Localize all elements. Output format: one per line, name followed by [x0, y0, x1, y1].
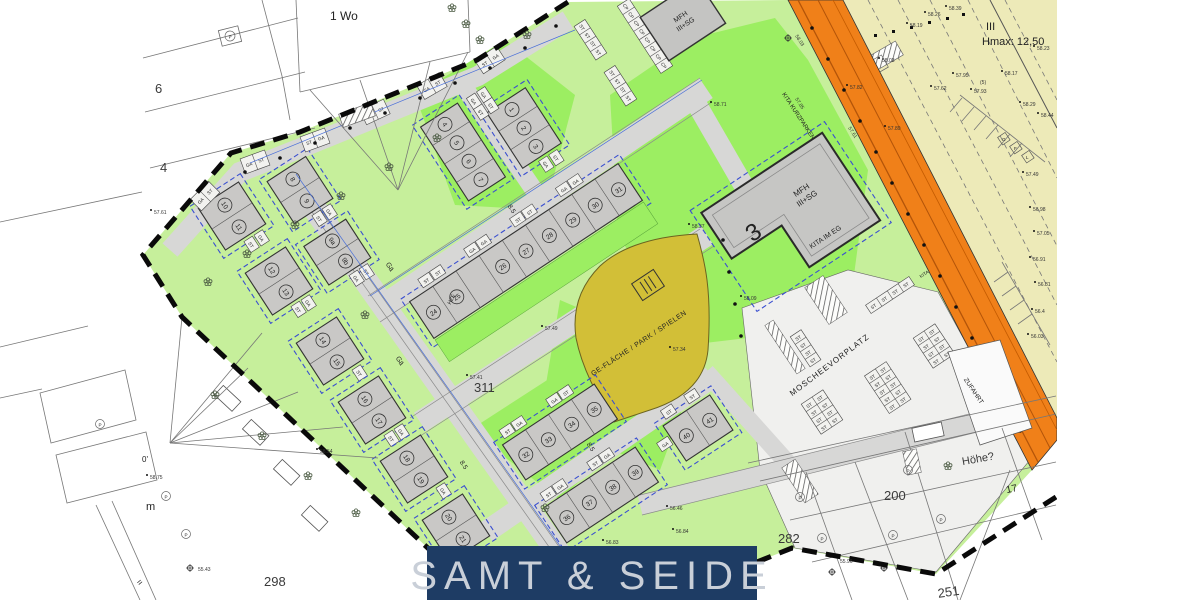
elevation-label: 57.62: [934, 86, 947, 92]
elevation-label: 57.05: [1037, 231, 1050, 237]
svg-text:P: P: [164, 495, 167, 500]
elevation-label: 56.98: [1033, 207, 1046, 213]
svg-text:P: P: [939, 518, 942, 523]
angle-label: 0': [142, 455, 148, 464]
elevation-label: 55.96: [840, 559, 853, 565]
elevation-label: 58.19: [910, 23, 923, 29]
parcel-298: 298: [264, 574, 286, 589]
hmax-label: Hmax: 12,50: [982, 36, 1044, 48]
elevation-label: 58.17: [1005, 71, 1018, 77]
floors-label: III: [986, 21, 995, 33]
elevation-label: 58.23: [1037, 46, 1050, 52]
elevation-label: 57.93: [974, 89, 987, 95]
elevation-label: 58.03: [882, 58, 895, 64]
svg-text:P: P: [98, 423, 101, 428]
elevation-label: 58.09: [744, 296, 757, 302]
site-plan-map: III Hmax: 12,50 (5) G F L: [0, 0, 1200, 600]
elevation-label: 57.82: [850, 85, 863, 91]
elevation-label: 57.89: [888, 126, 901, 132]
elevation-label: 58.26: [928, 12, 941, 18]
elevation-label: 57.61: [154, 210, 167, 216]
parcel-311: 311: [474, 380, 495, 395]
elevation-label: 58.29: [1023, 102, 1036, 108]
parcel-200: 200: [884, 488, 906, 503]
utility-g: G: [1002, 137, 1006, 142]
elevation-label: 56.91: [1033, 257, 1046, 263]
elevation-label: 57.41: [470, 375, 483, 381]
elevation-label: 57.34: [673, 347, 686, 353]
elevation-label: 56.84: [676, 529, 689, 535]
elevation-label: 56.46: [670, 506, 683, 512]
parcel-1wo: 1 Wo: [330, 9, 358, 23]
svg-text:P: P: [184, 533, 187, 538]
site-plan-screenshot: III Hmax: 12,50 (5) G F L: [0, 0, 1200, 600]
parcel-251: 251: [937, 583, 961, 600]
elevation-label: 55.43: [198, 567, 211, 573]
svg-text:P: P: [906, 469, 909, 474]
svg-text:P: P: [891, 534, 894, 539]
parcel-4: 4: [160, 160, 167, 175]
svg-text:P: P: [820, 537, 823, 542]
elevation-label: 58.75: [150, 475, 163, 481]
parcel-282: 282: [778, 531, 800, 546]
elevation-label: 58.37: [692, 224, 705, 230]
elevation-label: 58.39: [949, 6, 962, 12]
elevation-label: 56.4: [1035, 309, 1045, 315]
street-letter-m: m: [146, 501, 155, 513]
elevation-label: 57.49: [1026, 172, 1039, 178]
svg-text:P: P: [798, 496, 801, 501]
elevation-label: 58.54: [320, 449, 333, 455]
elevation-label: 56.03: [1031, 334, 1044, 340]
elevation-label: 58.71: [714, 102, 727, 108]
elevation-label: 58.44: [1041, 113, 1054, 119]
elevation-label: 56.83: [606, 540, 619, 546]
parcel-6: 6: [155, 81, 162, 96]
brand-title: SAMT & SEIDE: [410, 554, 773, 598]
parcel-5: (5): [980, 80, 986, 86]
elevation-label: 57.49: [545, 326, 558, 332]
elevation-label: 57.95: [956, 73, 969, 79]
utility-l: L: [1026, 155, 1029, 160]
brand-banner: SAMT & SEIDE: [410, 546, 773, 600]
utility-f: F: [1014, 146, 1017, 151]
elevation-label: 56.81: [1038, 282, 1051, 288]
right-white-margin: [1057, 0, 1200, 600]
